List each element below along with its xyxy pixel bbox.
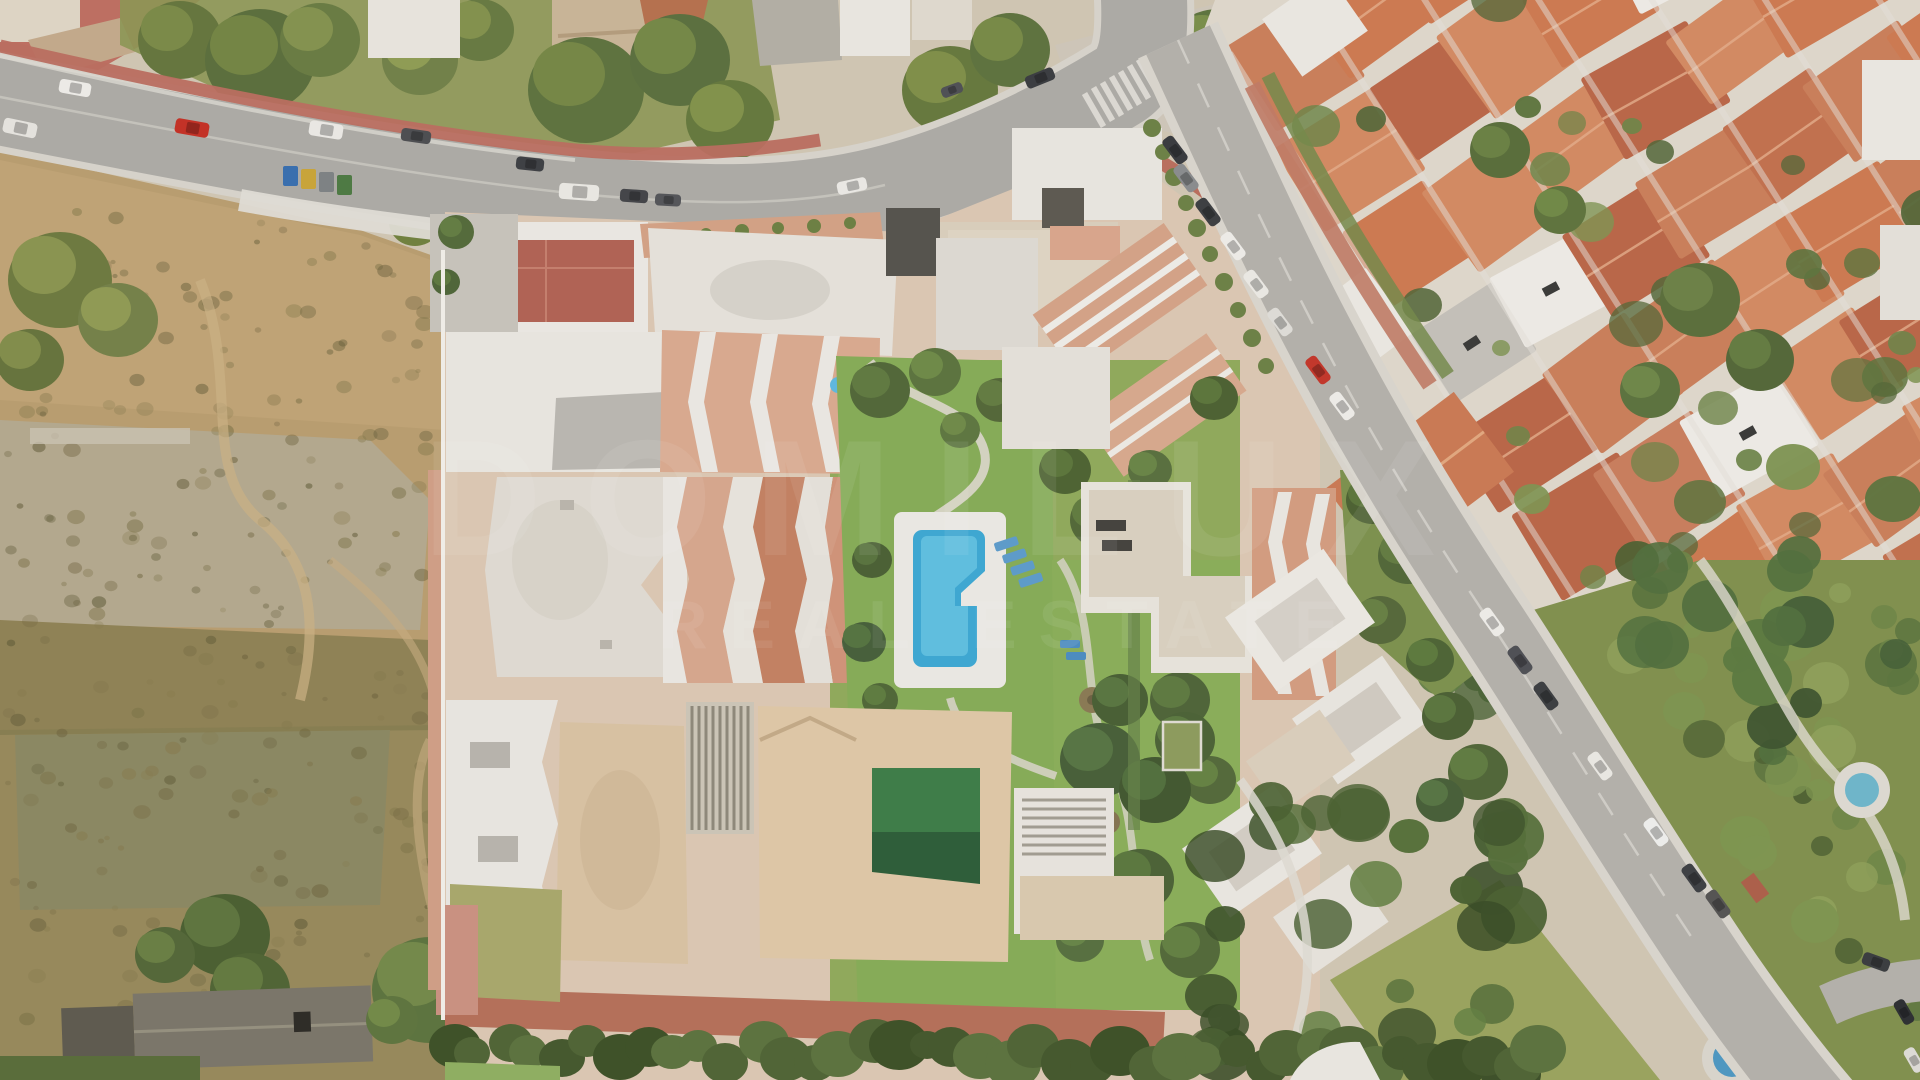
svg-text:DOMILUX: DOMILUX <box>423 406 1478 590</box>
svg-text:REAL ESTATE: REAL ESTATE <box>659 587 1362 663</box>
